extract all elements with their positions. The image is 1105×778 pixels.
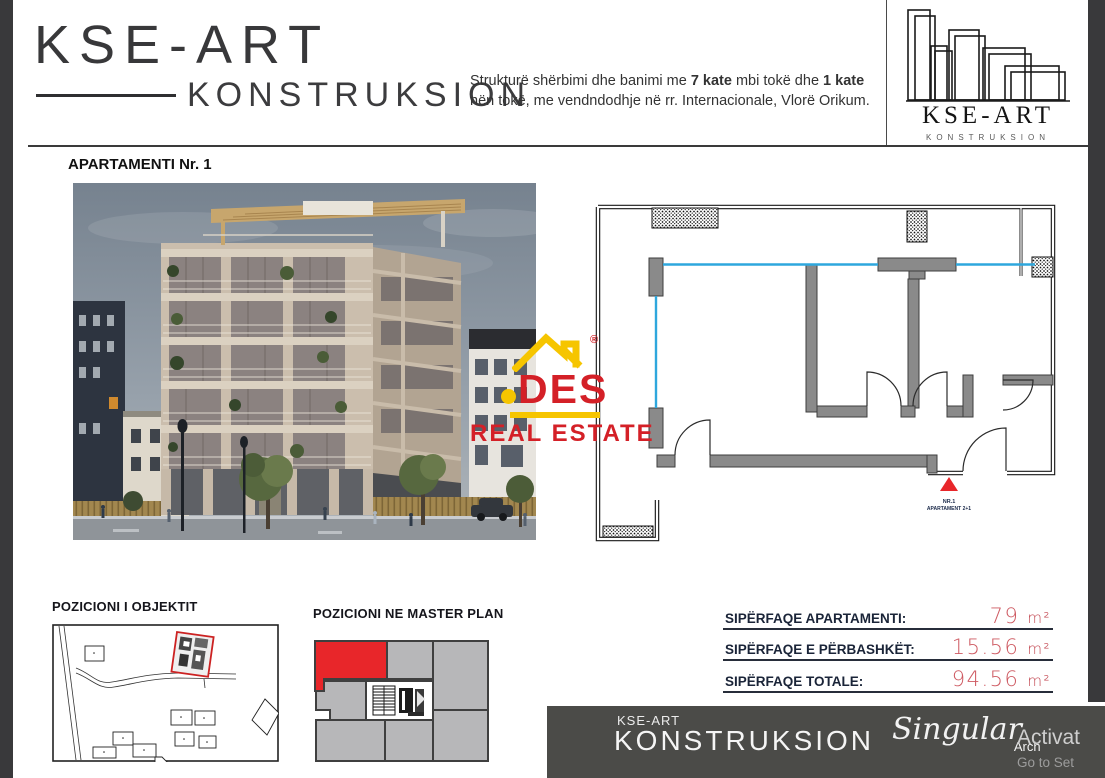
- footer-brand-large: KONSTRUKSION: [614, 725, 874, 757]
- area-unit: m²: [1027, 609, 1051, 627]
- area-unit: m²: [1027, 672, 1051, 690]
- logo-badge-subtitle: KONSTRUKSION: [886, 133, 1090, 142]
- area-number: 15.56: [952, 635, 1020, 659]
- brand-underline: [36, 94, 176, 97]
- watermark-subtitle: REAL ESTATE: [470, 420, 655, 448]
- des-real-estate-watermark: ® DES REAL ESTATE: [460, 328, 655, 450]
- logo-badge-title: KSE-ART: [886, 102, 1090, 130]
- area-label: SIPËRFAQE APARTAMENTI:: [725, 611, 906, 626]
- master-plan-map: [313, 639, 490, 763]
- brand-title: KSE-ART: [34, 14, 330, 76]
- description-text: Strukturë shërbimi dhe banimi me: [470, 73, 691, 89]
- apartment-floor-plan: NR.1 APARTAMENT 2+1: [595, 200, 1057, 545]
- description-bold-7kate: 7 kate: [691, 73, 732, 89]
- area-value: 15.56m²: [952, 635, 1051, 659]
- apartment-section-title: APARTAMENTI Nr. 1: [68, 156, 212, 173]
- studio-name: Singular: [892, 712, 1022, 747]
- company-logo-badge: KSE-ART KONSTRUKSION: [886, 0, 1090, 146]
- site-plan-map: [52, 624, 279, 762]
- north-triangle-icon: [940, 477, 958, 491]
- watermark-brand: DES: [518, 366, 608, 413]
- area-label: SIPËRFAQE TOTALE:: [725, 674, 863, 689]
- table-row: SIPËRFAQE APARTAMENTI: 79m²: [723, 598, 1053, 630]
- site-plan-title: POZICIONI I OBJEKTIT: [52, 599, 198, 614]
- plan-marker-type: APARTAMENT 2+1: [927, 506, 971, 512]
- area-label: SIPËRFAQE E PËRBASHKËT:: [725, 642, 915, 657]
- plan-marker-number: NR.1: [943, 499, 956, 505]
- area-value: 79m²: [990, 604, 1051, 628]
- watermark-dot-icon: [501, 389, 516, 404]
- project-description: Strukturë shërbimi dhe banimi me 7 kate …: [470, 72, 875, 111]
- area-number: 79: [990, 604, 1020, 628]
- description-text-line2: nën tokë, me vendndodhje në rr. Internac…: [470, 93, 870, 109]
- activation-line1: Activat: [1017, 726, 1080, 750]
- area-unit: m²: [1027, 640, 1051, 658]
- table-row: SIPËRFAQE TOTALE: 94.56m²: [723, 661, 1053, 693]
- master-plan-title: POZICIONI NE MASTER PLAN: [313, 606, 503, 621]
- windows-activation-watermark: Activat Go to Set: [1017, 726, 1080, 770]
- brochure-page: KSE-ART KONSTRUKSION Strukturë shërbimi …: [0, 0, 1105, 778]
- description-bold-1kate: 1 kate: [823, 73, 864, 89]
- area-value: 94.56m²: [952, 667, 1051, 691]
- description-text: mbi tokë dhe: [732, 73, 823, 89]
- registered-mark: ®: [590, 334, 598, 346]
- table-row: SIPËRFAQE E PËRBASHKËT: 15.56m²: [723, 630, 1053, 662]
- footer-bar: KSE-ART KONSTRUKSION SingularArch Activa…: [547, 706, 1105, 778]
- area-summary-table: SIPËRFAQE APARTAMENTI: 79m² SIPËRFAQE E …: [723, 598, 1053, 693]
- area-number: 94.56: [952, 667, 1020, 691]
- left-edge-bar: [0, 0, 13, 778]
- header-separator-line: [28, 145, 1090, 147]
- watermark-underline: [510, 412, 600, 418]
- right-edge-bar: [1088, 0, 1105, 702]
- building-frames-logo-icon: [904, 8, 1072, 104]
- activation-line2: Go to Set: [1017, 755, 1080, 770]
